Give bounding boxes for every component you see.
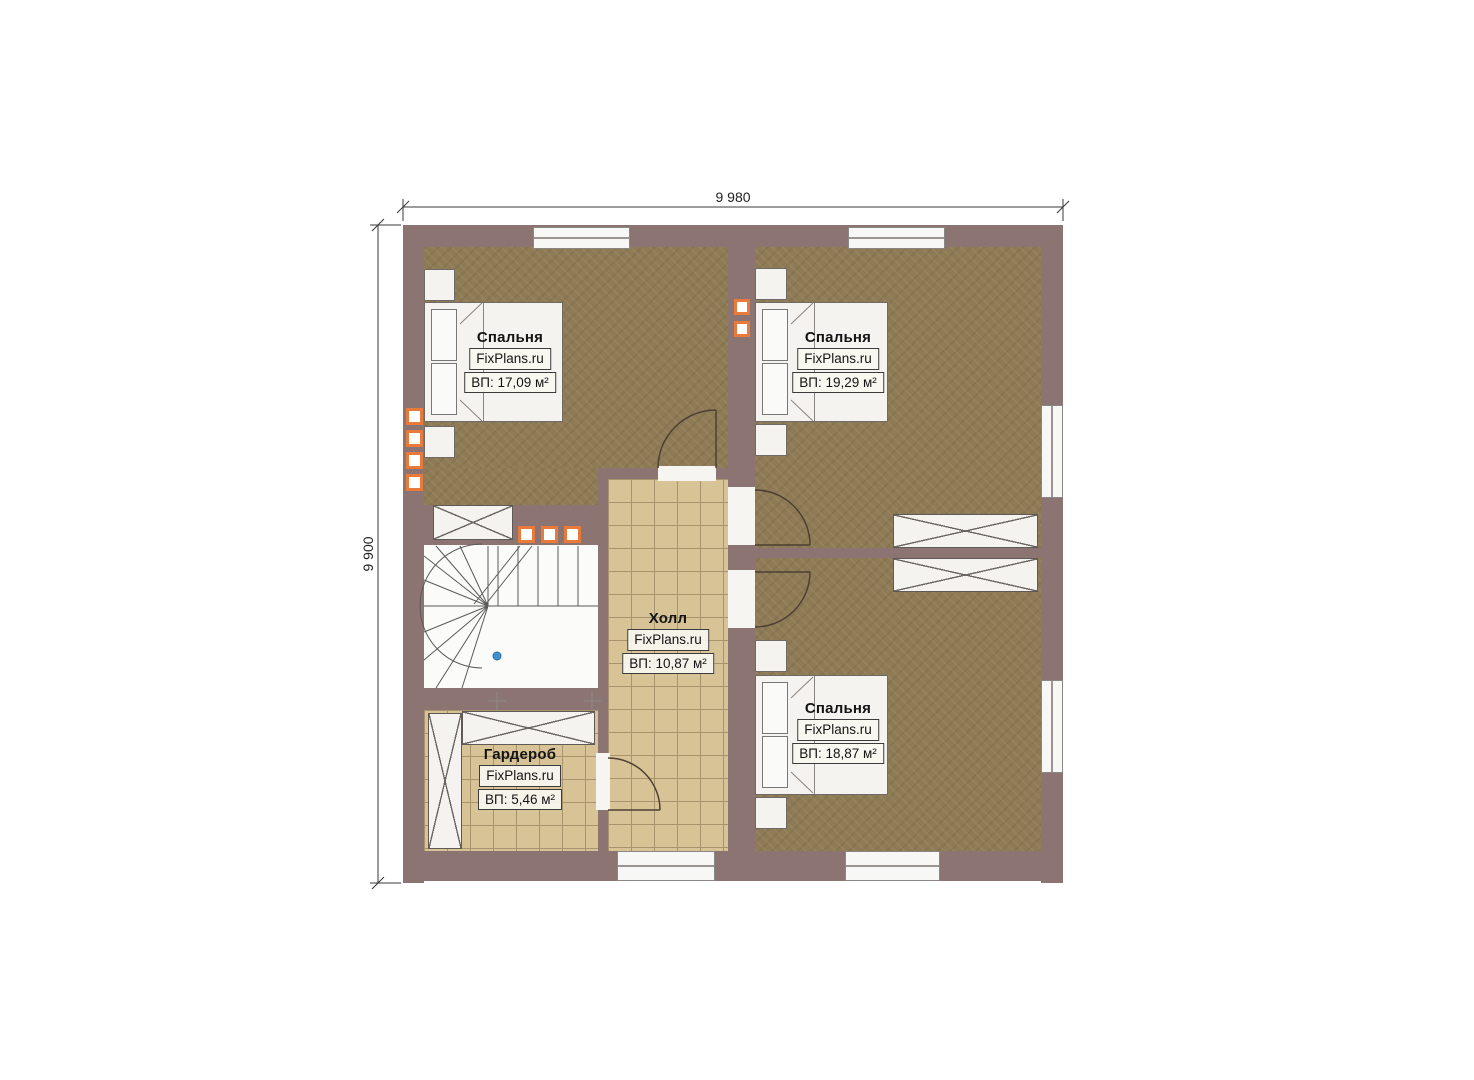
wardrobe-unit-right-upper <box>893 514 1038 548</box>
room-brand: FixPlans.ru <box>479 765 561 787</box>
room-label-bedroom-top-right: Спальня FixPlans.ru ВП: 19,29 м² <box>792 329 884 393</box>
nightstand <box>755 424 787 456</box>
nightstand <box>755 640 787 672</box>
vent-marker <box>406 474 423 491</box>
room-name: Холл <box>649 610 687 627</box>
window-right-lower <box>1041 680 1063 773</box>
room-label-bedroom-top-left: Спальня FixPlans.ru ВП: 17,09 м² <box>464 329 556 393</box>
nightstand <box>424 269 455 301</box>
wall-top <box>403 225 1063 247</box>
room-brand: FixPlans.ru <box>797 348 879 370</box>
pillow <box>762 363 788 415</box>
room-name: Спальня <box>477 329 543 346</box>
room-name: Спальня <box>805 329 871 346</box>
vent-marker <box>406 408 423 425</box>
room-area: ВП: 19,29 м² <box>792 372 884 394</box>
vent-marker <box>734 299 750 315</box>
vent-marker <box>406 452 423 469</box>
nightstand <box>755 268 787 300</box>
dimension-left-label: 9 900 <box>360 536 376 571</box>
wardrobe-unit-top-left <box>433 505 513 540</box>
pillow <box>431 309 457 361</box>
room-label-wardrobe: Гардероб FixPlans.ru ВП: 5,46 м² <box>478 746 562 810</box>
floor-plan-page: 9 980 9 900 Спальня FixPlans.ru ВП: 17,0… <box>0 0 1474 1080</box>
window-top-right <box>848 227 945 249</box>
vent-marker <box>564 526 581 543</box>
vent-marker <box>518 526 535 543</box>
window-bottom-hall <box>617 851 715 881</box>
pillow <box>762 736 788 788</box>
wall-middle-vertical <box>728 247 755 851</box>
room-name: Спальня <box>805 700 871 717</box>
room-label-bedroom-bottom-right: Спальня FixPlans.ru ВП: 18,87 м² <box>792 700 884 764</box>
dimension-top-label: 9 980 <box>715 189 750 205</box>
window-right-upper <box>1041 405 1063 498</box>
stair-room-floor <box>424 545 598 688</box>
wardrobe-unit-right-lower <box>893 558 1038 592</box>
bedroom-top-left-floor-lower <box>424 468 598 505</box>
pillow <box>762 682 788 734</box>
pillow <box>762 309 788 361</box>
room-brand: FixPlans.ru <box>797 719 879 741</box>
door-opening-hall-to-bedroom-bottom-right <box>728 570 755 628</box>
room-brand: FixPlans.ru <box>627 629 709 651</box>
window-bottom-bedroom <box>845 851 940 881</box>
nightstand <box>755 797 787 829</box>
wall-bottom <box>403 851 1063 881</box>
room-area: ВП: 5,46 м² <box>478 789 562 811</box>
room-area: ВП: 17,09 м² <box>464 372 556 394</box>
nightstand <box>424 426 455 458</box>
pillow <box>431 363 457 415</box>
window-top-left <box>533 227 630 249</box>
door-opening-hall-to-bedroom-top-right <box>728 487 755 545</box>
door-opening-hall-to-bedroom-top-left <box>658 466 716 481</box>
wall-between-right-bedrooms <box>755 548 1041 558</box>
vent-marker <box>541 526 558 543</box>
room-name: Гардероб <box>484 746 557 763</box>
room-brand: FixPlans.ru <box>469 348 551 370</box>
wardrobe-unit-top-horizontal <box>462 711 595 745</box>
wall-left <box>403 225 424 883</box>
vent-marker <box>406 430 423 447</box>
wardrobe-unit-left-vertical <box>428 713 462 849</box>
vent-marker <box>734 321 750 337</box>
door-opening-hall-to-wardrobe <box>596 753 610 810</box>
room-area: ВП: 10,87 м² <box>622 653 714 675</box>
room-area: ВП: 18,87 м² <box>792 743 884 765</box>
wall-under-stairs <box>403 688 598 710</box>
room-label-hall: Холл FixPlans.ru ВП: 10,87 м² <box>622 610 714 674</box>
wall-right <box>1041 225 1063 883</box>
